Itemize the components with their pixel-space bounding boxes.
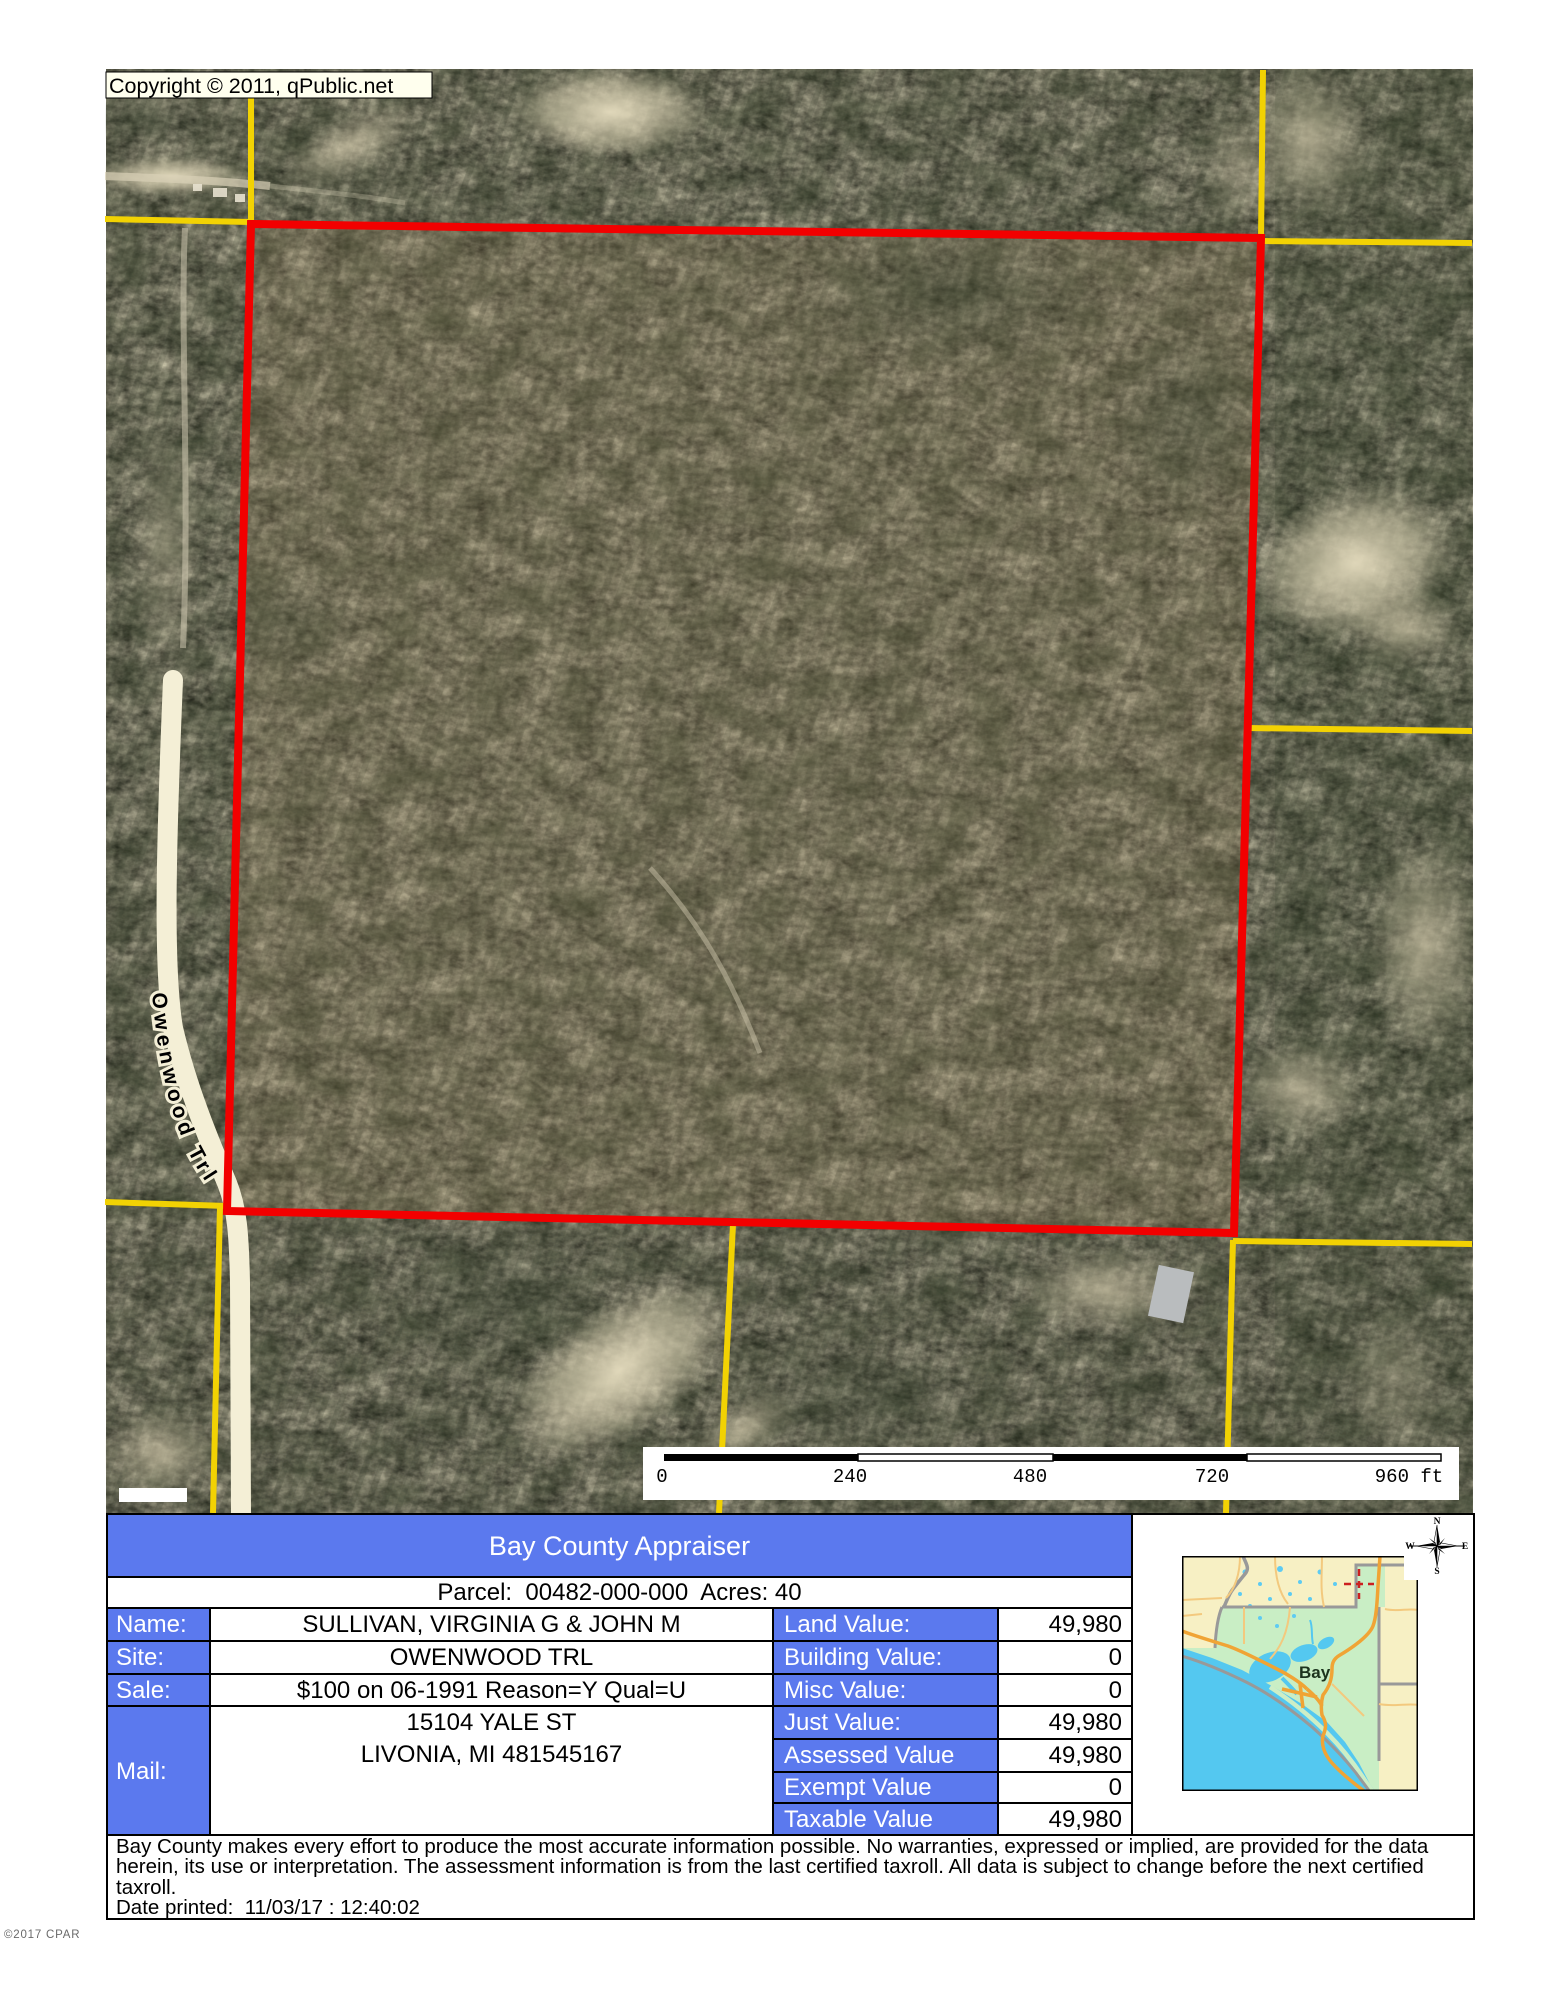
svg-text:720: 720 — [1195, 1466, 1229, 1488]
svg-text:960 ft: 960 ft — [1375, 1466, 1443, 1488]
svg-text:N: N — [1434, 1517, 1441, 1527]
svg-text:Bay: Bay — [1299, 1663, 1331, 1682]
svg-text:S: S — [1434, 1567, 1439, 1577]
svg-text:480: 480 — [1013, 1466, 1047, 1488]
svg-text:W: W — [1405, 1542, 1415, 1552]
svg-text:0: 0 — [656, 1466, 667, 1488]
svg-text:240: 240 — [833, 1466, 867, 1488]
svg-text:Copyright © 2011, qPublic.net: Copyright © 2011, qPublic.net — [109, 74, 393, 98]
svg-text:E: E — [1462, 1542, 1468, 1552]
